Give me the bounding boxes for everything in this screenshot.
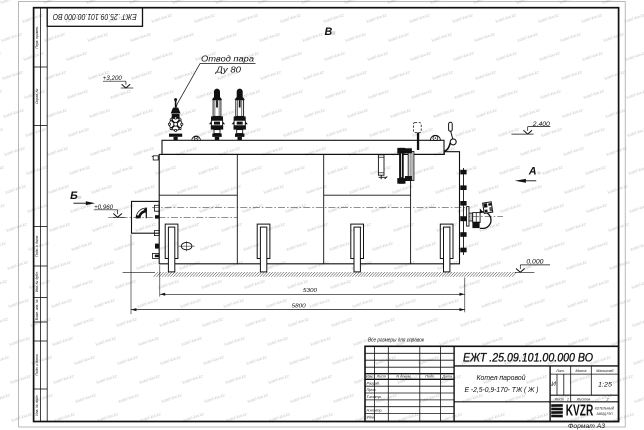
svg-text:0,000: 0,000 (526, 258, 543, 265)
svg-text:Н.контр.: Н.контр. (367, 409, 383, 413)
svg-text:Формат А3: Формат А3 (568, 424, 606, 430)
svg-text:Перв. примен.: Перв. примен. (35, 26, 39, 49)
svg-text:Масштаб: Масштаб (596, 369, 614, 373)
svg-text:Изм.: Изм. (366, 375, 374, 379)
svg-text:Справ. №: Справ. № (35, 88, 39, 104)
svg-text:Пров.: Пров. (367, 388, 377, 392)
svg-text:Лист: Лист (554, 398, 565, 402)
svg-text:Инв. № дубл.: Инв. № дубл. (35, 271, 39, 292)
svg-text:Лист: Лист (376, 375, 386, 379)
svg-text:Котел паровой: Котел паровой (477, 373, 527, 382)
svg-text:Взам. инв. №: Взам. инв. № (35, 299, 39, 320)
svg-text:Инв. № подл.: Инв. № подл. (35, 395, 39, 416)
svg-text:5800: 5800 (292, 304, 307, 310)
svg-text:Т.контр.: Т.контр. (367, 395, 382, 399)
svg-text:Разраб.: Разраб. (367, 382, 381, 386)
svg-text:+3,200: +3,200 (103, 75, 122, 82)
svg-text:Б: Б (70, 190, 78, 202)
svg-text:Подп. и дата: Подп. и дата (35, 354, 39, 375)
svg-text:Е -2,5-0,9-170- ТЖ ( Ж ): Е -2,5-0,9-170- ТЖ ( Ж ) (465, 385, 539, 394)
svg-text:1: 1 (567, 398, 569, 402)
svg-text:5300: 5300 (303, 288, 318, 294)
svg-text:N докум.: N докум. (396, 375, 411, 379)
svg-text:Масса: Масса (576, 369, 587, 373)
svg-text:1:25: 1:25 (598, 382, 612, 389)
svg-text:2: 2 (605, 398, 608, 402)
svg-text:Ду 80: Ду 80 (215, 65, 242, 74)
svg-text:КОТЕЛЬНЫЙ: КОТЕЛЬНЫЙ (595, 406, 615, 410)
svg-text:А: А (528, 166, 537, 178)
svg-text:KVZR: KVZR (566, 402, 594, 419)
svg-text:Утв.: Утв. (367, 415, 376, 419)
svg-text:Отвод пара: Отвод пара (201, 55, 254, 64)
svg-text:Листов: Листов (576, 398, 591, 402)
svg-text:ЕЖТ .25.09.101.00.000 ВО: ЕЖТ .25.09.101.00.000 ВО (53, 12, 137, 21)
svg-text:Подп.: Подп. (425, 375, 435, 379)
svg-text:Дата: Дата (441, 375, 451, 379)
svg-text:Лит.: Лит. (555, 369, 565, 373)
svg-text:И: И (551, 381, 556, 388)
svg-text:Все размеры для справок: Все размеры для справок (368, 338, 424, 344)
svg-text:ЗАВОД РЭП: ЗАВОД РЭП (597, 412, 614, 416)
svg-text:ЕЖТ .25.09.101.00.000 ВО: ЕЖТ .25.09.101.00.000 ВО (463, 351, 593, 364)
svg-text:Подп. и дата: Подп. и дата (35, 235, 39, 256)
svg-text:В: В (324, 26, 332, 38)
